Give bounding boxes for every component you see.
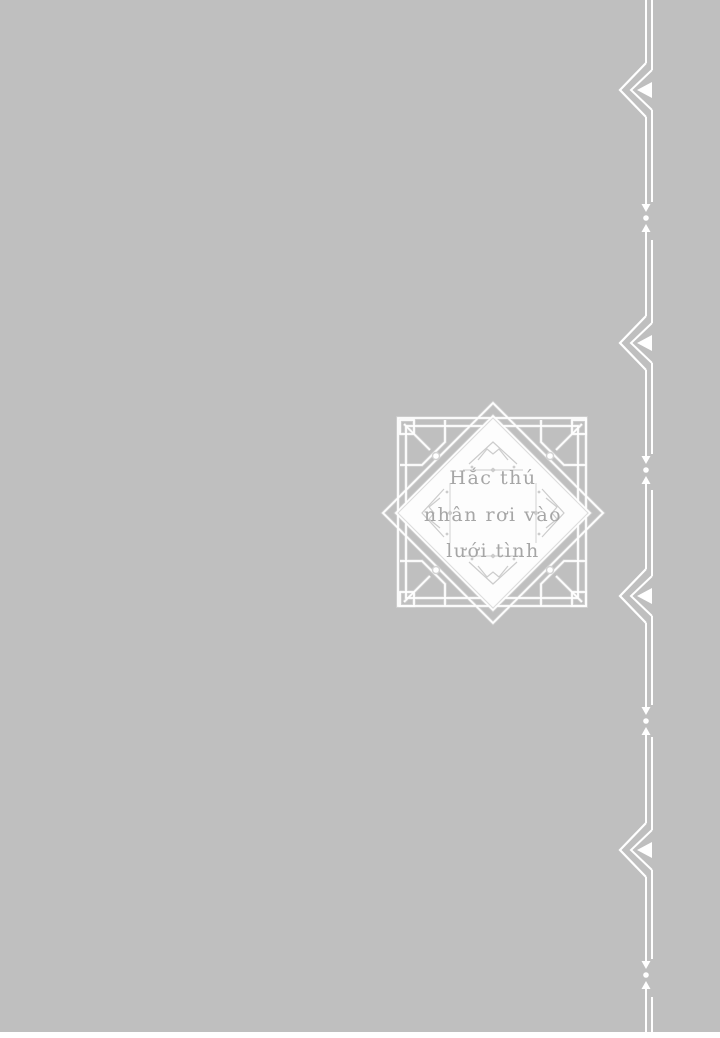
double-chevron-left-icon [620,63,652,117]
double-chevron-left-icon [620,569,652,623]
arrow-dot-arrow-icon [642,707,651,735]
arrow-dot-arrow-icon [642,204,651,232]
chapter-title-line: Hắc thú [373,460,613,497]
arrow-dot-arrow-icon [642,961,651,989]
double-chevron-left-icon [620,316,652,370]
double-chevron-left-icon [620,823,652,877]
arrow-dot-arrow-icon [642,456,651,484]
chapter-title: Hắc thú nhân rơi vào lưới tình [373,460,613,570]
page-background: Hắc thú nhân rơi vào lưới tình [0,0,720,1038]
chapter-title-line: nhân rơi vào [373,497,613,534]
chapter-title-line: lưới tình [373,533,613,570]
vertical-double-line [646,0,652,1038]
bottom-edge-strip [0,1032,720,1038]
